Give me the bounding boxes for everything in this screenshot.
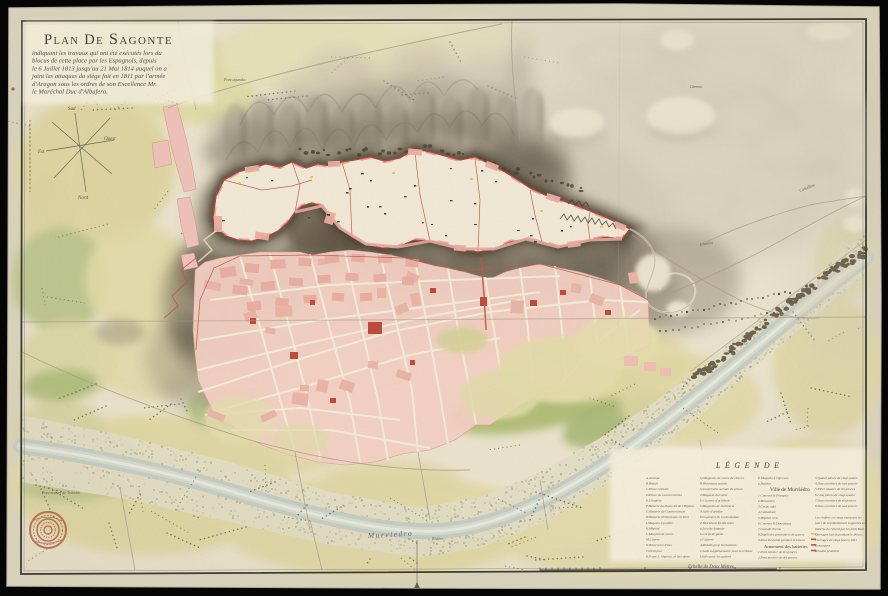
svg-text:Nord: Nord [77,196,89,201]
svg-text:7.Deux mortiers de six pouces: 7.Deux mortiers de six pouces [815,498,857,502]
svg-text:Z.Blockhaus fortification: Z.Blockhaus fortification [700,521,734,525]
svg-text:6.Couvent St Dominique: 6.Couvent St Dominique [758,521,792,525]
svg-text:7.Grande citerne: 7.Grande citerne [758,527,782,531]
svg-text:M.Citerne: M.Citerne [645,538,660,542]
svg-text:Armement des batteries: Armement des batteries [764,544,808,549]
svg-text:B.Réduit: B.Réduit [646,482,659,486]
svg-text:b.Corps de garde: b.Corps de garde [700,532,724,536]
svg-text:D.Place du Gouvernement: D.Place du Gouvernement [645,493,683,497]
svg-text:9.Pont élévation pendant le bl: 9.Pont élévation pendant le blocus [758,538,806,542]
svg-text:g.Bastion: g.Bastion [758,482,771,486]
svg-text:d'Aragon sous les ordres de so: d'Aragon sous les ordres de son Excellen… [32,81,157,88]
svg-text:A.Arsenal: A.Arsenal [645,476,660,480]
svg-text:le 6 Juillet 1813 jusqu'au 21: le 6 Juillet 1813 jusqu'au 21 Mai 1814 a… [32,65,167,72]
svg-text:N.Réservoirs d'eau: N.Réservoirs d'eau [645,543,672,547]
svg-text:2.Pont mortier de dix pouces: 2.Pont mortier de dix pouces [758,555,798,559]
svg-text:1.Couvent St François: 1.Couvent St François [758,493,789,497]
svg-text:Ville de Murviédro: Ville de Murviédro [770,487,810,493]
svg-text:H.Batterie d'Oberteaux en terr: H.Batterie d'Oberteaux en terre [645,515,690,519]
svg-text:le Maréchal Duc d'Albufera.: le Maréchal Duc d'Albufera. [32,89,108,96]
svg-text:8.Dépôt des prisonniers de gue: 8.Dépôt des prisonniers de guerre [758,533,805,537]
svg-text:Sud: Sud [68,107,76,112]
svg-text:Est: Est [37,150,45,155]
svg-text:2.Monastère: 2.Monastère [758,499,775,503]
svg-text:jours de bombardement supporté: jours de bombardement supportés à la [814,521,867,525]
svg-text:G.Batterie du Gouvernement: G.Batterie du Gouvernement [646,510,686,514]
svg-text:8.Deux mortiers de huit pouces: 8.Deux mortiers de huit pouces [815,504,858,508]
svg-text:3.Corps rafel: 3.Corps rafel [758,505,776,509]
svg-text:6.Cinq pièces de vingt-quatre: 6.Cinq pièces de vingt-quatre [815,493,855,497]
svg-text:E.Citadelle: E.Citadelle [645,498,662,502]
svg-text:Pont aqueduc: Pont aqueduc [223,77,246,82]
svg-text:3.Quatre pièces de vingt-quatr: 3.Quatre pièces de vingt-quatre [815,476,858,480]
svg-text:Pont nouvel de Tramine: Pont nouvel de Tramine [41,490,81,495]
svg-text:Ouvrages lancés pendant le blo: Ouvrages lancés pendant le blocus [815,532,863,536]
svg-text:4.Cathédrale: 4.Cathédrale [758,510,776,514]
svg-text:indiquant les travaux qui ont: indiquant les travaux qui ont été exécut… [32,50,162,57]
svg-text:V.Magasins de l'artillerie: V.Magasins de l'artillerie [700,504,735,508]
svg-text:5.Pièce obusier de six pouces: 5.Pièce obusier de six pouces [815,487,856,491]
svg-text:E.Magasin à l'épreuve: E.Magasin à l'épreuve [757,476,789,480]
svg-text:batterie du rebord par les for: batterie du rebord par les forts Réal [815,527,864,531]
svg-text:U.Caserne d'artillerie: U.Caserne d'artillerie [700,498,730,502]
svg-text:I.Magasin à poudre: I.Magasin à poudre [645,521,673,525]
svg-text:d.Réduits pour les bastions: d.Réduits pour les bastions [700,543,737,547]
svg-text:Les chiffres en rouge marquent: Les chiffres en rouge marquent les [814,516,862,520]
svg-text:C.Place centrale: C.Place centrale [646,487,669,491]
svg-text:Ouvrages du siège fait en 1811: Ouvrages du siège fait en 1811 [815,538,857,542]
svg-text:blocus de cette place par les: blocus de cette place par les Espagnols,… [32,58,157,65]
svg-text:joint les attaques du siège fa: joint les attaques du siège fait en 1811… [31,73,165,80]
svg-text:Y.Logement du Commandant: Y.Logement du Commandant [700,515,740,519]
svg-text:X.Salle d'artifice: X.Salle d'artifice [699,510,723,514]
svg-text:e.Salle supplémentaire pour la: e.Salle supplémentaire pour la redoute [700,549,753,553]
svg-text:Remarques: Remarques [814,544,831,548]
svg-text:Chemin: Chemin [690,85,702,89]
svg-text:T.Magasin du Génie: T.Magasin du Génie [700,493,728,497]
svg-text:1.Pont obusier de six pouces: 1.Pont obusier de six pouces [758,550,798,554]
svg-text:L.Magasin de vivres: L.Magasin de vivres [645,532,674,536]
svg-text:S.Souterrains servant de priso: S.Souterrains servant de prison [700,487,743,491]
svg-text:Q.Magasins de vivres de réserv: Q.Magasins de vivres de réserve [700,476,745,480]
svg-text:K.Hôpital: K.Hôpital [645,526,660,530]
svg-text:f.Salle pour les galères: f.Salle pour les galères [700,554,732,558]
svg-text:F.Batterie du Doyle dit de l'H: F.Batterie du Doyle dit de l'Hôpital [645,504,694,508]
svg-text:4.Deux mortiers de huit pouces: 4.Deux mortiers de huit pouces [815,482,858,486]
svg-text:Résultat probable: Résultat probable [814,549,840,553]
svg-text:Ouest: Ouest [104,137,116,142]
svg-text:O.Petit four: O.Petit four [646,549,663,553]
svg-text:a.Lieu de Sagonte: a.Lieu de Sagonte [700,526,725,530]
svg-text:LÉGENDE: LÉGENDE [715,460,784,470]
svg-text:Rivière: Rivière [431,536,444,541]
svg-text:5.Hôpital civil: 5.Hôpital civil [758,516,778,520]
svg-text:c.Caserne: c.Caserne [700,538,714,542]
svg-text:R.Blockhaus mobile: R.Blockhaus mobile [699,482,728,486]
